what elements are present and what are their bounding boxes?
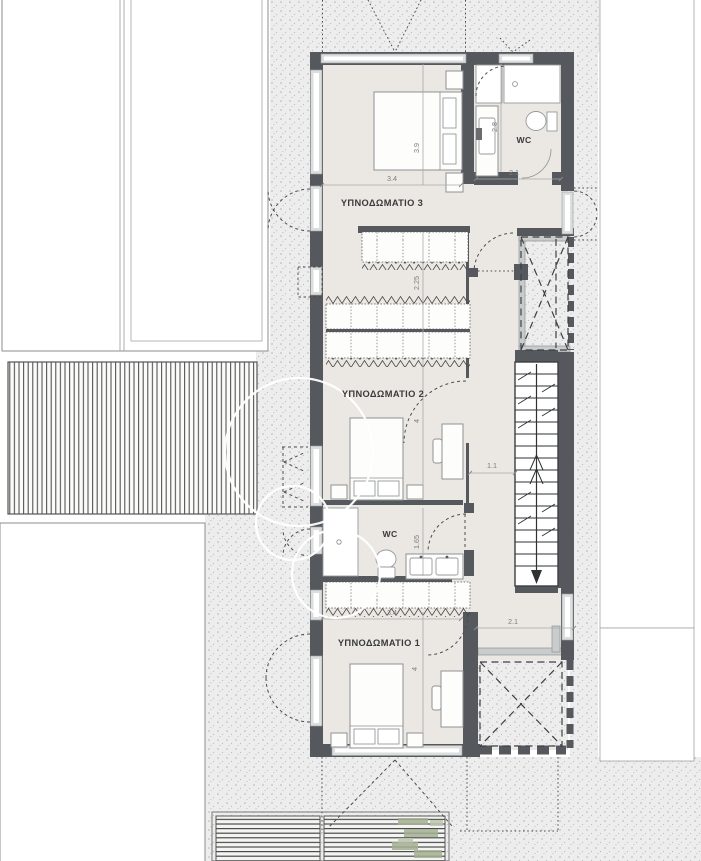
shower-icon <box>476 65 502 103</box>
wall-wc-mid-north <box>322 500 463 505</box>
desk-icon <box>442 424 463 479</box>
desk-icon <box>441 671 463 727</box>
wall-stub-d <box>464 550 474 576</box>
timber-deck <box>8 362 257 514</box>
nightstand-icon <box>446 173 463 192</box>
faucet-icon <box>446 556 449 559</box>
dim-hall-width: 1.1 <box>487 461 497 470</box>
paving-top <box>270 0 600 52</box>
nightstand-icon <box>446 71 463 89</box>
dim-bedroom3-depth: 3.9 <box>412 143 421 153</box>
wall-east-top <box>561 52 574 191</box>
dim-bedroom2-depth: 4 <box>412 419 421 423</box>
neighbor-building-right <box>600 0 694 761</box>
drain-icon <box>513 82 518 87</box>
dim-bedroom3-width: 3.4 <box>387 174 397 183</box>
pillow-icon <box>378 481 399 496</box>
dim-wc-middle-depth: 1.65 <box>412 535 421 549</box>
window-west-wc <box>311 527 323 554</box>
pillow-icon <box>443 98 456 128</box>
louver-panel-left <box>216 816 320 861</box>
nightstand-icon <box>407 733 423 747</box>
nightstand-icon <box>331 485 347 499</box>
nightstand-icon <box>407 485 423 499</box>
pillow-icon <box>354 729 375 744</box>
wall-bed1-east <box>463 612 478 750</box>
floor-plan-page: ΥΠΝΟΔΩΜΑΤΙΟ 3 ΥΠΝΟΔΩΜΑΤΙΟ 2 ΥΠΝΟΔΩΜΑΤΙΟ … <box>0 0 701 861</box>
chair-icon <box>432 686 441 710</box>
wardrobe-hang-icon <box>362 262 468 270</box>
wall-east-stairs <box>558 352 574 588</box>
wc-middle-label: WC <box>383 529 398 539</box>
paving-right-strip <box>570 0 598 757</box>
sink-basin-icon <box>436 558 458 575</box>
door-east-glass <box>562 192 573 234</box>
wall-wc-top-south-b <box>552 172 562 185</box>
window-west-bed1 <box>311 656 323 726</box>
paving-mid-left <box>256 350 310 520</box>
chair-icon <box>433 439 442 463</box>
window-west-bed3 <box>311 70 323 174</box>
bedroom-2-label: ΥΠΝΟΔΩΜΑΤΙΟ 2 <box>342 389 424 399</box>
drain-icon <box>337 540 341 544</box>
neighbor-building-top-left <box>2 0 268 351</box>
faucet-icon <box>476 128 482 140</box>
sink-basin-icon <box>410 558 432 575</box>
void-upper-paving <box>524 235 570 352</box>
wc-top-label: WC <box>517 135 532 145</box>
wall-stairs-top <box>515 350 558 362</box>
toilet-tank-icon <box>547 112 557 131</box>
bedroom-3-label: ΥΠΝΟΔΩΜΑΤΙΟ 3 <box>341 198 423 208</box>
window-east-hall <box>562 594 573 640</box>
faucet-icon <box>420 556 423 559</box>
bedroom-1-label: ΥΠΝΟΔΩΜΑΤΙΟ 1 <box>338 638 420 648</box>
floor-plan-drawing: ΥΠΝΟΔΩΜΑΤΙΟ 3 ΥΠΝΟΔΩΜΑΤΙΟ 2 ΥΠΝΟΔΩΜΑΤΙΟ … <box>0 0 701 861</box>
wardrobe-hang-icon <box>326 296 470 304</box>
wall-stub-c <box>464 503 474 513</box>
bedroom1-wardrobe-group <box>326 582 470 617</box>
dim-bedroom1-width: 3.4 <box>387 608 397 617</box>
pillow-icon <box>378 729 399 744</box>
pergola-louvers <box>212 812 449 861</box>
toilet-icon <box>526 112 546 131</box>
window-north-1 <box>321 54 466 63</box>
wall-corridor-top <box>517 228 563 236</box>
dim-dressing-depth: 2.25 <box>412 276 421 290</box>
dim-hall-bottom-width: 2.1 <box>508 617 518 626</box>
neighbor-building-bottom-left <box>0 523 205 861</box>
dim-wc-top-depth: 2.8 <box>490 122 499 132</box>
window-north-2 <box>499 54 533 63</box>
dim-bedroom1-depth: 4 <box>410 667 419 671</box>
pillow-icon <box>443 134 456 164</box>
window-west-small <box>311 267 323 295</box>
dim-wc-top-width: 2.1 <box>509 168 519 177</box>
nightstand-icon <box>331 733 347 747</box>
wardrobe-hang-icon <box>326 358 470 367</box>
staircase <box>515 362 558 586</box>
door-west-dressing <box>311 186 323 231</box>
